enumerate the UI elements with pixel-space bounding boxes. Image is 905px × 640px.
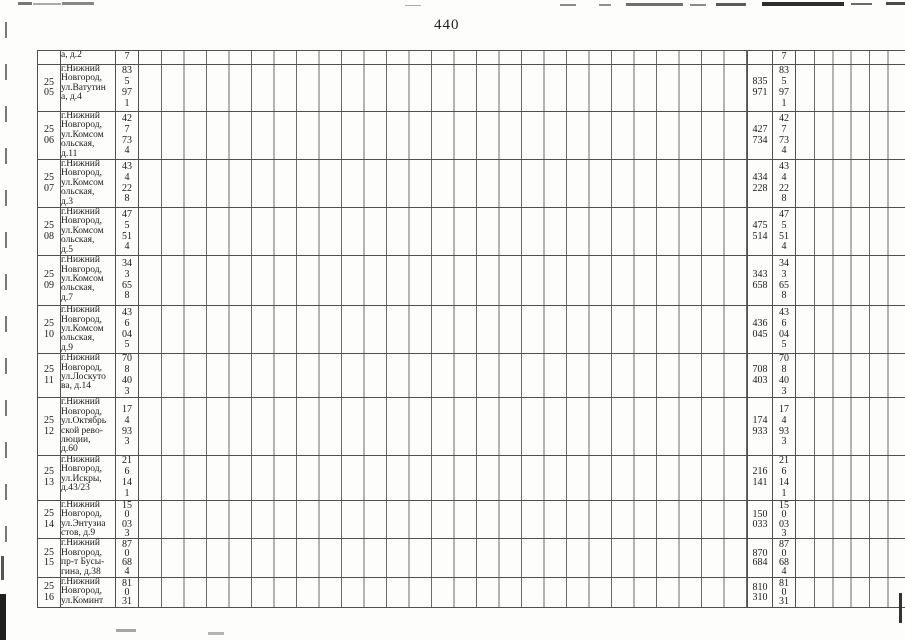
empty-grid-cells xyxy=(139,160,748,208)
value-vertical-cell: 43 6 04 5 xyxy=(116,306,139,354)
value-vertical-dup-cell: 83 5 97 1 xyxy=(773,65,796,112)
empty-grid-cells xyxy=(139,500,748,539)
empty-grid-cells xyxy=(796,160,905,208)
scan-artifact xyxy=(716,3,746,6)
scanned-page: 440 а, д.2 7 7 25 05 г.Нижний Новгород, … xyxy=(0,0,905,640)
empty-grid-cells xyxy=(139,256,748,306)
value-vertical-cell: 7 xyxy=(116,51,139,65)
address-cell: г.Нижний Новгород, ул.Комсом ольская, д.… xyxy=(61,160,116,208)
scan-artifact xyxy=(626,3,683,6)
value-pair-cell: 835 971 xyxy=(748,65,773,112)
value-vertical-dup-cell: 21 6 14 1 xyxy=(773,455,796,500)
empty-grid-cells xyxy=(139,578,748,608)
empty-grid-cells xyxy=(796,208,905,256)
address-cell: г.Нижний Новгород, ул.Ватутин а, д.4 xyxy=(61,65,116,112)
scan-artifact xyxy=(851,3,872,5)
row-number-cell: 25 13 xyxy=(38,455,61,500)
value-vertical-cell: 42 7 73 4 xyxy=(116,112,139,160)
table-row: 25 13 г.Нижний Новгород, ул.Искры, д.43/… xyxy=(38,455,905,500)
empty-grid-cells xyxy=(796,51,905,65)
value-vertical-cell: 43 4 22 8 xyxy=(116,160,139,208)
row-number-cell: 25 10 xyxy=(38,306,61,354)
scan-artifact xyxy=(762,2,844,6)
scan-artifact xyxy=(18,2,32,5)
address-cell: а, д.2 xyxy=(61,51,116,65)
empty-grid-cells xyxy=(796,539,905,578)
value-pair-cell: 810 310 xyxy=(748,578,773,608)
table-row: 25 12 г.Нижний Новгород, ул.Октябрь ской… xyxy=(38,398,905,455)
left-margin-scan-line xyxy=(5,22,7,552)
value-vertical-cell: 21 6 14 1 xyxy=(116,455,139,500)
address-cell: г.Нижний Новгород, ул.Коминт xyxy=(61,578,116,608)
value-vertical-cell: 70 8 40 3 xyxy=(116,354,139,398)
table-row: 25 08 г.Нижний Новгород, ул.Комсом ольск… xyxy=(38,208,905,256)
empty-grid-cells xyxy=(796,354,905,398)
row-number-cell: 25 07 xyxy=(38,160,61,208)
scan-artifact xyxy=(62,2,94,5)
scan-artifact xyxy=(1,556,4,580)
empty-grid-cells xyxy=(139,539,748,578)
table-row: 25 07 г.Нижний Новгород, ул.Комсом ольск… xyxy=(38,160,905,208)
value-pair-cell xyxy=(748,51,773,65)
row-number-cell: 25 12 xyxy=(38,398,61,455)
empty-grid-cells xyxy=(139,51,748,65)
empty-grid-cells xyxy=(139,455,748,500)
table-row: 25 15 г.Нижний Новгород, пр-т Бусы- гина… xyxy=(38,539,905,578)
scan-artifact xyxy=(405,5,421,6)
value-vertical-dup-cell: 7 xyxy=(773,51,796,65)
table-row: а, д.2 7 7 xyxy=(38,51,905,65)
row-number-cell: 25 15 xyxy=(38,539,61,578)
address-cell: г.Нижний Новгород, ул.Лоскуто ва, д.14 xyxy=(61,354,116,398)
value-pair-cell: 436 045 xyxy=(748,306,773,354)
scan-artifact xyxy=(690,4,706,6)
row-number-cell: 25 08 xyxy=(38,208,61,256)
value-pair-cell: 427 734 xyxy=(748,112,773,160)
value-pair-cell: 150 033 xyxy=(748,500,773,539)
scan-artifact xyxy=(0,594,6,640)
empty-grid-cells xyxy=(796,256,905,306)
empty-grid-cells xyxy=(796,578,905,608)
value-vertical-dup-cell: 47 5 51 4 xyxy=(773,208,796,256)
address-cell: г.Нижний Новгород, ул.Комсом ольская, д.… xyxy=(61,112,116,160)
value-vertical-cell: 83 5 97 1 xyxy=(116,65,139,112)
table-row: 25 16 г.Нижний Новгород, ул.Коминт 81 0 … xyxy=(38,578,905,608)
row-number-cell xyxy=(38,51,61,65)
row-number-cell: 25 14 xyxy=(38,500,61,539)
value-vertical-dup-cell: 43 4 22 8 xyxy=(773,160,796,208)
value-pair-cell: 475 514 xyxy=(748,208,773,256)
row-number-cell: 25 16 xyxy=(38,578,61,608)
address-cell: г.Нижний Новгород, ул.Комсом ольская, д.… xyxy=(61,306,116,354)
empty-grid-cells xyxy=(796,398,905,455)
row-number-cell: 25 11 xyxy=(38,354,61,398)
table-row: 25 11 г.Нижний Новгород, ул.Лоскуто ва, … xyxy=(38,354,905,398)
row-number-cell: 25 05 xyxy=(38,65,61,112)
value-pair-cell: 870 684 xyxy=(748,539,773,578)
empty-grid-cells xyxy=(139,65,748,112)
empty-grid-cells xyxy=(796,65,905,112)
value-vertical-cell: 87 0 68 4 xyxy=(116,539,139,578)
table-row: 25 05 г.Нижний Новгород, ул.Ватутин а, д… xyxy=(38,65,905,112)
value-vertical-dup-cell: 42 7 73 4 xyxy=(773,112,796,160)
value-vertical-dup-cell: 34 3 65 8 xyxy=(773,256,796,306)
value-vertical-dup-cell: 70 8 40 3 xyxy=(773,354,796,398)
empty-grid-cells xyxy=(796,455,905,500)
value-vertical-dup-cell: 81 0 31 xyxy=(773,578,796,608)
value-vertical-dup-cell: 17 4 93 3 xyxy=(773,398,796,455)
empty-grid-cells xyxy=(796,112,905,160)
address-cell: г.Нижний Новгород, пр-т Бусы- гина, д.38 xyxy=(61,539,116,578)
scan-artifact xyxy=(560,4,576,6)
scan-artifact xyxy=(886,2,905,5)
scan-artifact xyxy=(116,629,136,632)
value-vertical-cell: 81 0 31 xyxy=(116,578,139,608)
ledger-table: а, д.2 7 7 25 05 г.Нижний Новгород, ул.В… xyxy=(37,50,905,608)
empty-grid-cells xyxy=(139,112,748,160)
value-vertical-dup-cell: 15 0 03 3 xyxy=(773,500,796,539)
empty-grid-cells xyxy=(139,306,748,354)
value-pair-cell: 216 141 xyxy=(748,455,773,500)
value-pair-cell: 434 228 xyxy=(748,160,773,208)
table-row: 25 14 г.Нижний Новгород, ул.Энтузиа стов… xyxy=(38,500,905,539)
value-vertical-cell: 34 3 65 8 xyxy=(116,256,139,306)
empty-grid-cells xyxy=(139,208,748,256)
table-row: 25 09 г.Нижний Новгород, ул.Комсом ольск… xyxy=(38,256,905,306)
scan-artifact xyxy=(208,632,224,635)
value-vertical-dup-cell: 43 6 04 5 xyxy=(773,306,796,354)
row-number-cell: 25 09 xyxy=(38,256,61,306)
empty-grid-cells xyxy=(796,500,905,539)
value-pair-cell: 174 933 xyxy=(748,398,773,455)
value-vertical-cell: 15 0 03 3 xyxy=(116,500,139,539)
address-cell: г.Нижний Новгород, ул.Комсом ольская, д.… xyxy=(61,256,116,306)
value-pair-cell: 708 403 xyxy=(748,354,773,398)
address-cell: г.Нижний Новгород, ул.Комсом ольская, д.… xyxy=(61,208,116,256)
table-row: 25 06 г.Нижний Новгород, ул.Комсом ольск… xyxy=(38,112,905,160)
value-vertical-cell: 47 5 51 4 xyxy=(116,208,139,256)
page-number: 440 xyxy=(434,17,460,34)
table-row: 25 10 г.Нижний Новгород, ул.Комсом ольск… xyxy=(38,306,905,354)
scan-artifact xyxy=(33,3,61,5)
empty-grid-cells xyxy=(796,306,905,354)
address-cell: г.Нижний Новгород, ул.Октябрь ской рево-… xyxy=(61,398,116,455)
address-cell: г.Нижний Новгород, ул.Энтузиа стов, д.9 xyxy=(61,500,116,539)
empty-grid-cells xyxy=(139,398,748,455)
value-vertical-cell: 17 4 93 3 xyxy=(116,398,139,455)
scan-artifact xyxy=(899,593,902,623)
row-number-cell: 25 06 xyxy=(38,112,61,160)
scan-artifact xyxy=(599,4,611,6)
value-pair-cell: 343 658 xyxy=(748,256,773,306)
value-vertical-dup-cell: 87 0 68 4 xyxy=(773,539,796,578)
address-cell: г.Нижний Новгород, ул.Искры, д.43/23 xyxy=(61,455,116,500)
empty-grid-cells xyxy=(139,354,748,398)
